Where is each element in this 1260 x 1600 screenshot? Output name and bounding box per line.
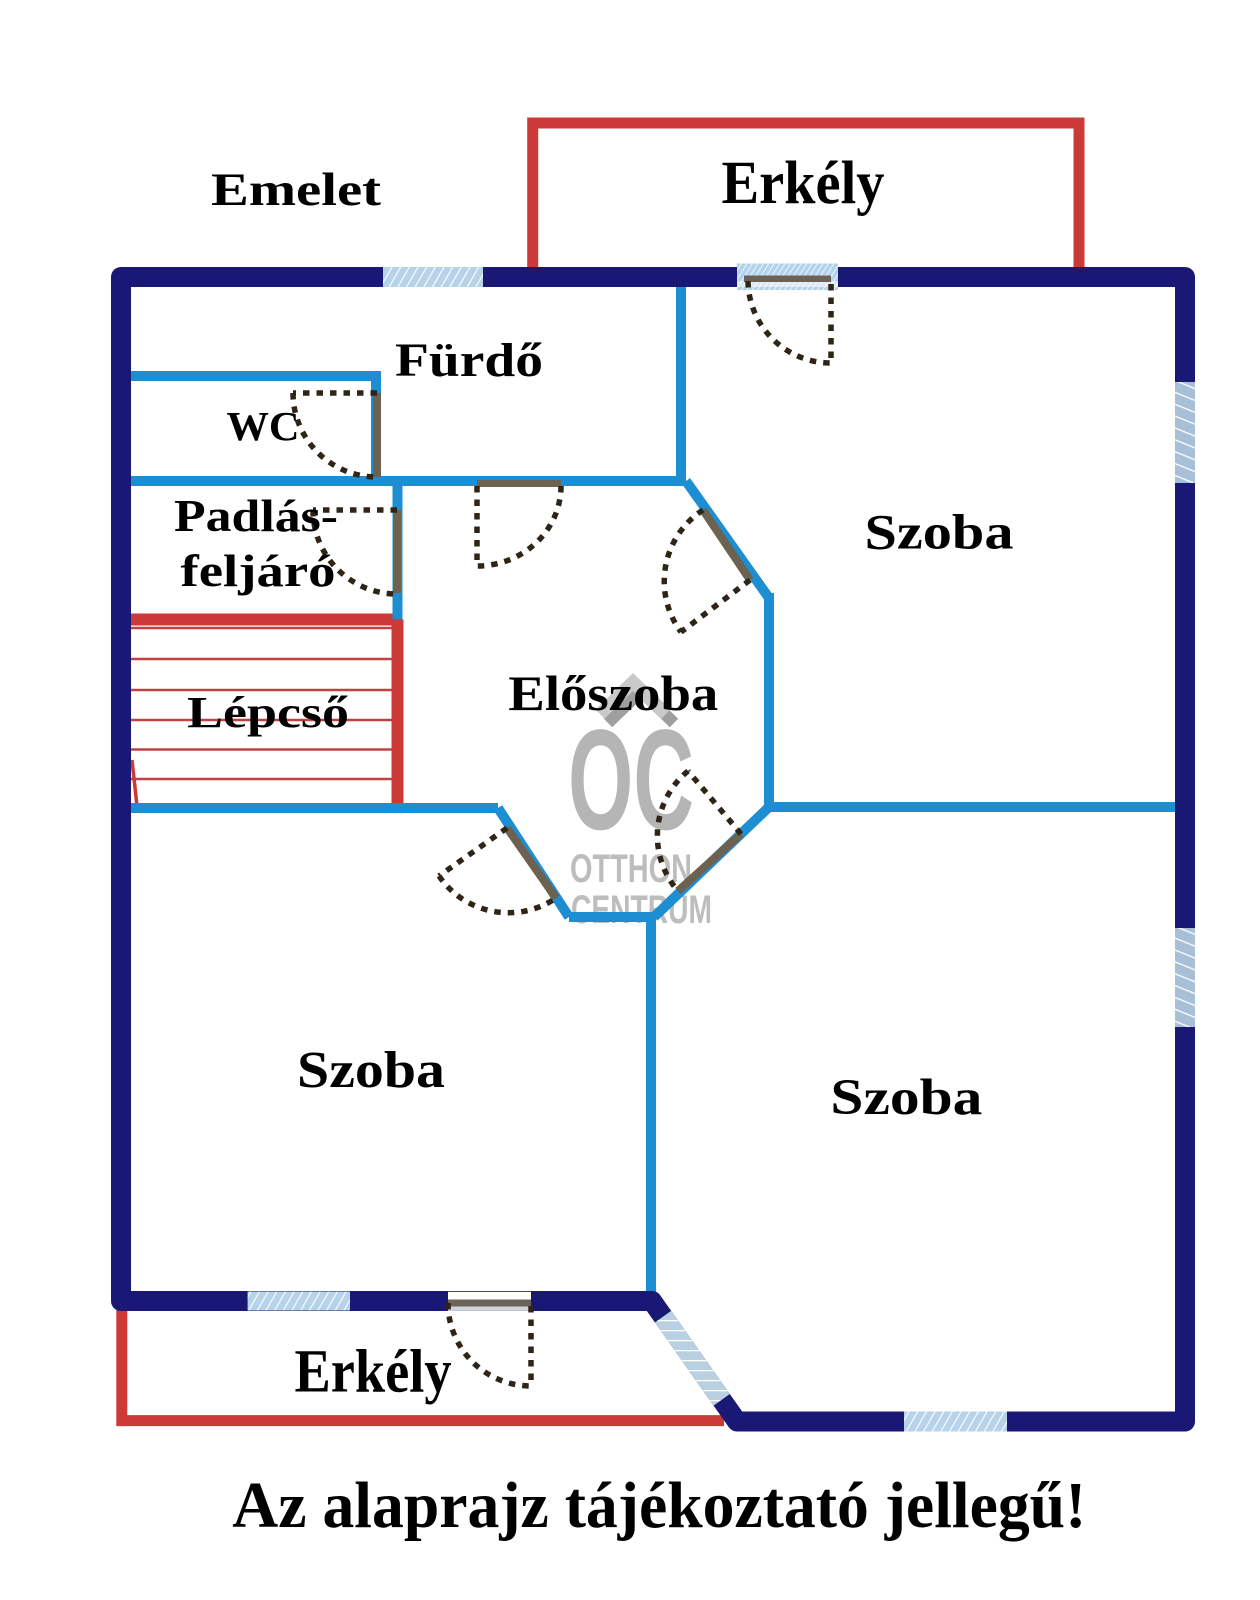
svg-text:Erkély: Erkély	[722, 150, 885, 217]
svg-text:Padlás-: Padlás-	[174, 490, 338, 541]
svg-text:Szoba: Szoba	[865, 504, 1014, 560]
svg-text:Fürdő: Fürdő	[395, 334, 543, 387]
svg-text:Szoba: Szoba	[297, 1042, 445, 1099]
svg-text:Emelet: Emelet	[211, 164, 381, 216]
svg-text:Előszoba: Előszoba	[508, 665, 718, 721]
svg-text:feljáró: feljáró	[181, 545, 336, 596]
svg-text:Az alaprajz tájékoztató jelleg: Az alaprajz tájékoztató jellegű!	[232, 1469, 1086, 1542]
svg-text:Erkély: Erkély	[295, 1338, 452, 1405]
svg-text:WC: WC	[227, 403, 300, 449]
svg-text:CENTRUM: CENTRUM	[571, 888, 712, 932]
svg-text:Szoba: Szoba	[830, 1070, 982, 1126]
svg-text:Lépcső: Lépcső	[187, 688, 349, 737]
